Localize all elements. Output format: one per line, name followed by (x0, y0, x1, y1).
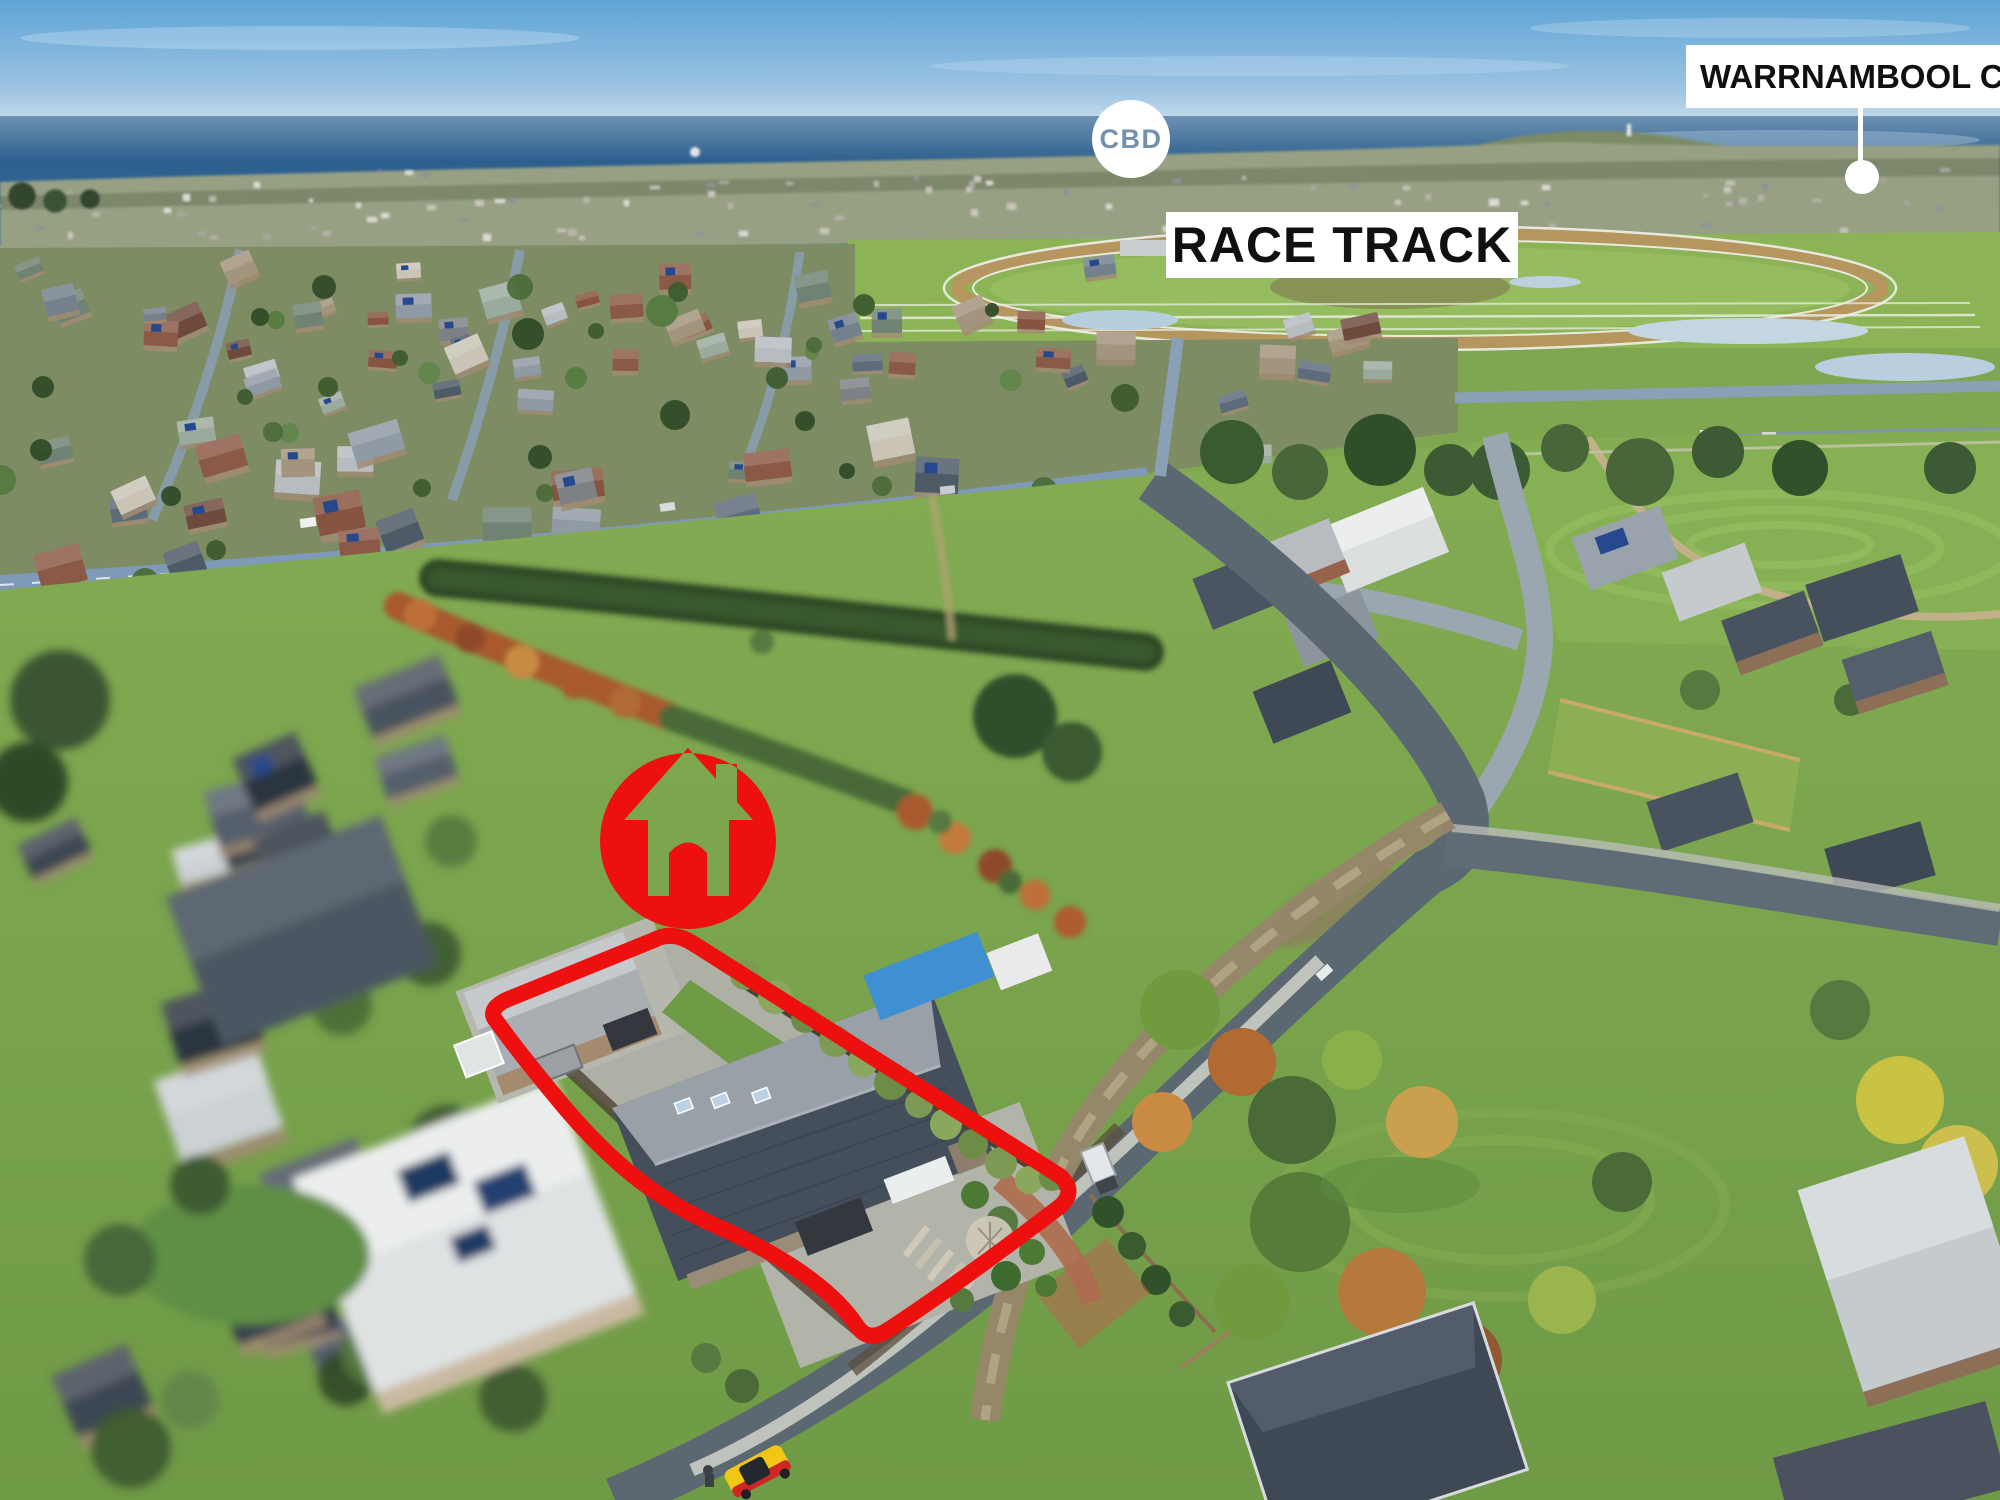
race-track-label: RACE TRACK (1166, 212, 1518, 278)
cbd-badge: CBD (1092, 100, 1170, 178)
college-label-text: WARRNAMBOOL COLLEGE (1700, 58, 2000, 95)
aerial-photo: CBD RACE TRACK WARRNAMBOOL COLLEGE (0, 0, 2000, 1500)
college-pointer-dot (1845, 160, 1879, 194)
college-pointer-line (1858, 107, 1863, 162)
pedestrian (703, 1465, 713, 1475)
aerial-photo-scene (0, 0, 2000, 1500)
race-track-label-text: RACE TRACK (1172, 216, 1513, 274)
college-label: WARRNAMBOOL COLLEGE (1686, 45, 2000, 108)
cbd-badge-label: CBD (1100, 124, 1163, 155)
